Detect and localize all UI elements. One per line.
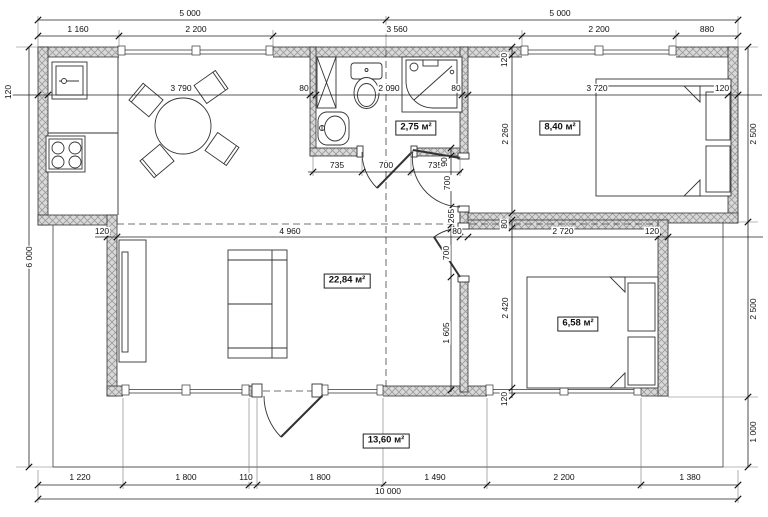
bed-bedroom1 — [596, 79, 731, 196]
washing-machine-icon — [317, 57, 336, 108]
dim-700-bath-door: 700 — [378, 161, 394, 170]
cabinet — [119, 240, 146, 362]
dim-1490: 1 490 — [423, 473, 446, 482]
dim-120-living-wall: 120 — [94, 227, 110, 236]
wall-kitchen-step — [38, 215, 117, 225]
wall-bathroom-left — [310, 47, 316, 156]
dim-2200-top-left: 2 200 — [184, 25, 207, 34]
dim-880: 880 — [699, 25, 715, 34]
dim-1160: 1 160 — [66, 25, 89, 34]
chair-icon — [205, 133, 239, 166]
dim-1380: 1 380 — [678, 473, 701, 482]
dim-3720: 3 720 — [585, 84, 608, 93]
dim-120-right-wall: 120 — [714, 84, 730, 93]
dim-10000: 10 000 — [374, 487, 402, 496]
dim-4960: 4 960 — [278, 227, 301, 236]
wall-bedroom2-left — [460, 277, 468, 392]
dim-80-bed2-top: 80 — [500, 218, 509, 229]
dim-120-bed2-wall: 120 — [644, 227, 660, 236]
dim-265: 265 — [447, 208, 456, 224]
dim-2500-lower: 2 500 — [749, 297, 758, 320]
dim-700-bed1-door: 700 — [443, 175, 452, 191]
dim-110: 110 — [238, 473, 254, 482]
room-label-terrace: 13,60 м² — [363, 434, 410, 449]
dim-2090: 2 090 — [377, 84, 400, 93]
dim-1800-left: 1 800 — [174, 473, 197, 482]
dim-2200-top-right: 2 200 — [587, 25, 610, 34]
dim-120-bed2-bottom: 120 — [500, 391, 509, 407]
refrigerator-icon — [52, 62, 87, 99]
dim-80-hall-wall: 80 — [451, 227, 462, 236]
dim-2260: 2 260 — [501, 122, 510, 145]
room-label-bedroom2: 6,58 м² — [557, 317, 598, 332]
wall-living-left — [107, 215, 117, 396]
dim-90: 90 — [440, 156, 449, 167]
dining-table — [155, 98, 211, 154]
dim-3790: 3 790 — [169, 84, 192, 93]
chair-icon — [194, 71, 228, 104]
sink-icon — [318, 112, 349, 145]
wall-bedroom2-right — [658, 220, 668, 396]
dim-80-bath-left: 80 — [298, 84, 309, 93]
dim-1000: 1 000 — [749, 420, 758, 443]
dim-80-bath-right: 80 — [450, 84, 461, 93]
dim-2200-bottom: 2 200 — [552, 473, 575, 482]
dim-120-left-wall: 120 — [4, 84, 13, 100]
floor-plan-canvas: 5 000 5 000 1 160 2 200 3 560 2 200 880 … — [0, 0, 768, 517]
chair-icon — [129, 83, 163, 117]
sofa — [228, 250, 287, 358]
room-label-bedroom1: 8,40 м² — [539, 121, 580, 136]
dim-2420: 2 420 — [501, 296, 510, 319]
dim-1605: 1 605 — [442, 321, 451, 344]
dim-overall-right: 5 000 — [548, 9, 571, 18]
dim-6000: 6 000 — [25, 245, 34, 268]
dim-2720: 2 720 — [551, 227, 574, 236]
stove-icon — [46, 136, 85, 172]
dim-overall-left: 5 000 — [178, 9, 201, 18]
dim-1800-center: 1 800 — [308, 473, 331, 482]
dim-2500-upper: 2 500 — [749, 122, 758, 145]
dim-120-top-wall: 120 — [500, 52, 509, 68]
room-label-bathroom: 2,75 м² — [395, 121, 436, 136]
bed-bedroom2 — [527, 277, 658, 388]
dim-1220: 1 220 — [68, 473, 91, 482]
dim-735-left: 735 — [329, 161, 345, 170]
dim-3560: 3 560 — [385, 25, 408, 34]
dim-700-bed2-door: 700 — [442, 245, 451, 261]
room-label-living: 22,84 м² — [324, 274, 371, 289]
